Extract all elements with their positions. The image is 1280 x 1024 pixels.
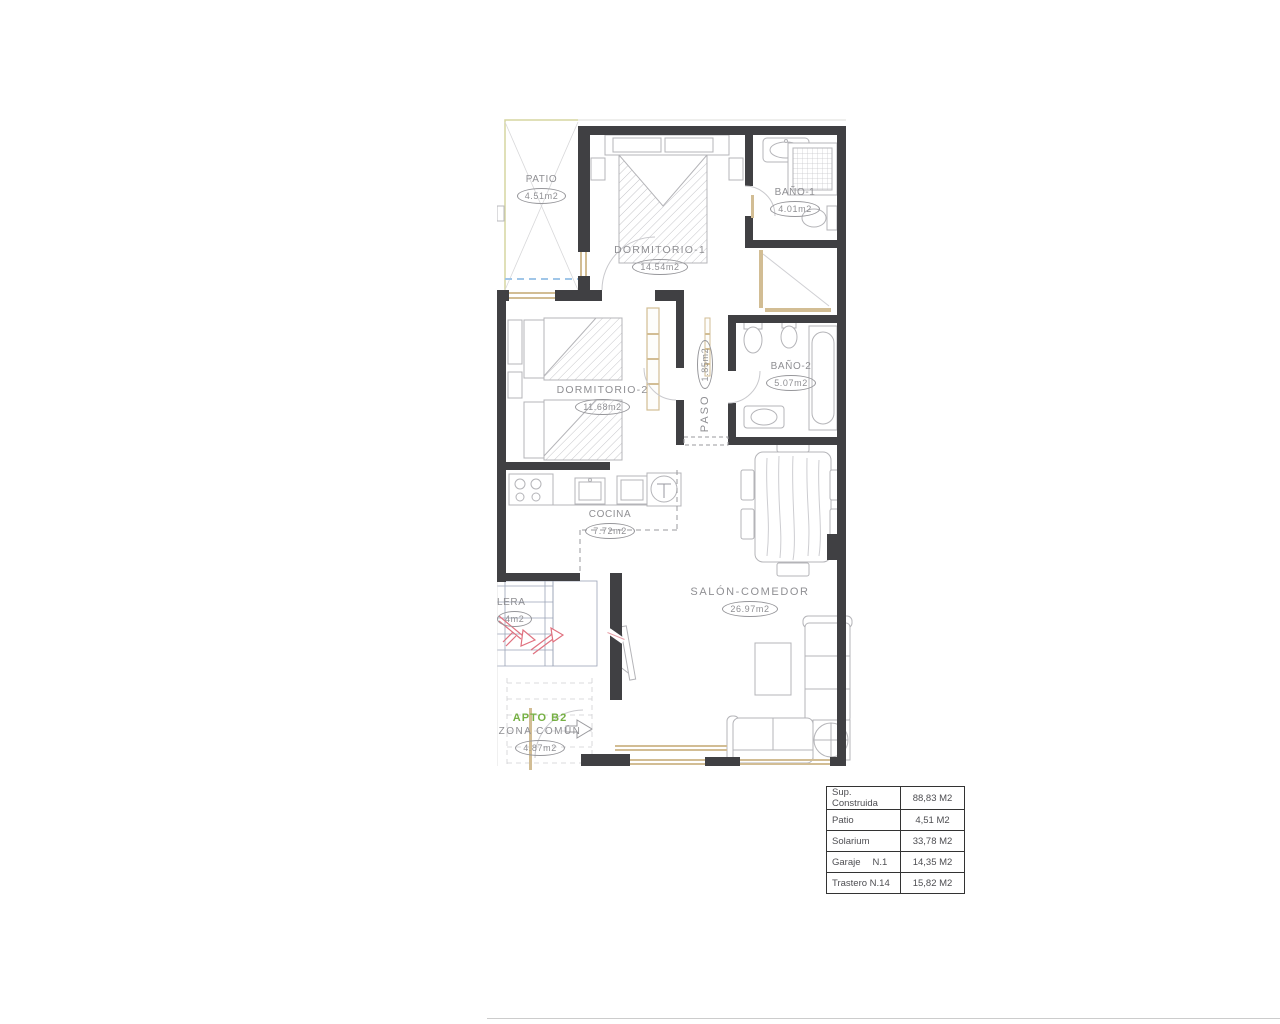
chair-icon <box>741 470 754 500</box>
room-label-zona-comun: APTO B2 ZONA COMÚN 4.87m2 <box>497 712 583 756</box>
area-oval: 4.51m2 <box>517 188 567 204</box>
room-name: BAÑO-2 <box>745 360 837 373</box>
surface-summary-table: Sup. Construida 88,83 M2 Patio 4,51 M2 S… <box>826 786 965 894</box>
area-oval: 4m2 <box>497 611 532 627</box>
room-label-bano-1: BAÑO-1 4.01m2 <box>749 186 841 217</box>
area-oval: 14.54m2 <box>632 259 687 275</box>
room-name: ZONA COMÚN <box>497 725 583 738</box>
area-oval: 7.72m2 <box>585 523 635 539</box>
row-label: Sup. Construida <box>827 787 901 810</box>
room-label-dormitorio-1: DORMITORIO-1 14.54m2 <box>592 244 728 275</box>
nightstand-icon <box>591 158 605 180</box>
coffee-table-icon <box>755 643 791 695</box>
room-name: DORMITORIO-2 <box>525 384 680 397</box>
apartment-tag: APTO B2 <box>497 712 583 725</box>
room-name: DORMITORIO-1 <box>592 244 728 257</box>
table-row: Trastero N.14 15,82 M2 <box>827 873 965 894</box>
floor-plan-drawing <box>497 118 853 778</box>
room-name: COCINA <box>557 508 663 521</box>
room-label-paso: PASO 1.85m2 <box>689 338 721 434</box>
table-row: Patio 4,51 M2 <box>827 810 965 831</box>
floor-plan: PATIO 4.51m2 DORMITORIO-1 14.54m2 BAÑO-1… <box>497 118 853 778</box>
table-row: GarajeN.1 14,35 M2 <box>827 852 965 873</box>
area-oval: 26.97m2 <box>722 601 777 617</box>
row-value: 33,78 M2 <box>901 831 965 852</box>
room-name: SALÓN-COMEDOR <box>677 586 823 599</box>
area-oval: 11.68m2 <box>575 399 630 415</box>
stove-icon <box>509 474 553 505</box>
table-row: Sup. Construida 88,83 M2 <box>827 787 965 810</box>
room-name: LERA <box>497 596 551 609</box>
area-oval: 4.87m2 <box>515 740 565 756</box>
washbasin-icon <box>744 406 784 428</box>
nightstand-icon <box>508 320 522 364</box>
toilet-icon <box>744 322 762 353</box>
row-value: 14,35 M2 <box>901 852 965 873</box>
chair-icon <box>741 509 754 539</box>
sofa-icon <box>727 716 813 763</box>
room-label-escalera: LERA 4m2 <box>497 596 551 627</box>
room-label-patio: PATIO 4.51m2 <box>505 173 578 204</box>
area-oval: 5.07m2 <box>766 375 816 391</box>
room-label-salon-comedor: SALÓN-COMEDOR 26.97m2 <box>677 586 823 617</box>
bidet-icon <box>781 322 797 348</box>
nightstand-icon <box>508 372 522 398</box>
area-oval: 1.85m2 <box>697 340 713 390</box>
room-label-cocina: COCINA 7.72m2 <box>557 508 663 539</box>
row-label: Solarium <box>827 831 901 852</box>
furniture <box>508 135 852 763</box>
page-bottom-border <box>487 1018 1280 1019</box>
patio-vent-icon <box>497 206 504 221</box>
room-name: BAÑO-1 <box>749 186 841 199</box>
kitchen-sink-icon <box>575 478 605 504</box>
table-row: Solarium 33,78 M2 <box>827 831 965 852</box>
area-oval: 4.01m2 <box>770 201 820 217</box>
room-name: PASO <box>699 394 712 432</box>
room-label-dormitorio-2: DORMITORIO-2 11.68m2 <box>525 384 680 415</box>
single-bed-icon <box>524 318 622 380</box>
chair-icon <box>777 563 809 576</box>
room-name: PATIO <box>505 173 578 186</box>
row-label: Trastero N.14 <box>827 873 901 894</box>
row-label-suffix: N.1 <box>873 857 888 868</box>
oven-icon <box>617 476 647 504</box>
row-value: 88,83 M2 <box>901 787 965 810</box>
row-value: 4,51 M2 <box>901 810 965 831</box>
room-label-bano-2: BAÑO-2 5.07m2 <box>745 360 837 391</box>
row-label: Garaje <box>832 857 861 868</box>
closet-line <box>763 254 829 306</box>
dining-table-icon <box>755 452 831 562</box>
page-canvas: PATIO 4.51m2 DORMITORIO-1 14.54m2 BAÑO-1… <box>0 0 1280 1024</box>
row-label: Patio <box>827 810 901 831</box>
nightstand-icon <box>729 158 743 180</box>
row-value: 15,82 M2 <box>901 873 965 894</box>
washer-icon <box>647 473 681 506</box>
